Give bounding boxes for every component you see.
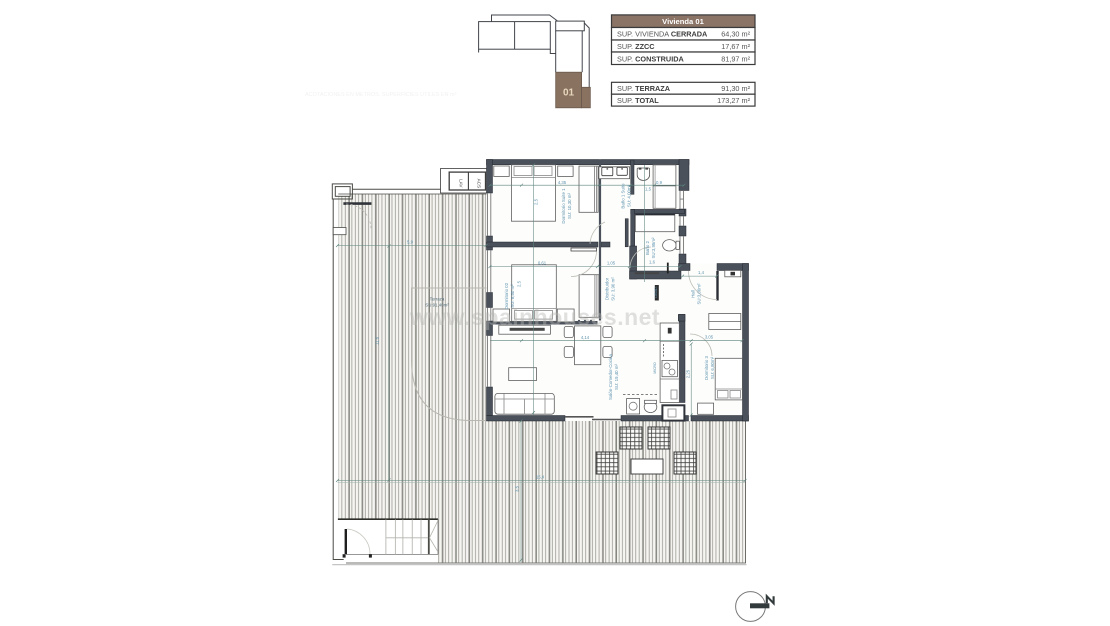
svg-text:91,30 m²: 91,30 m² [721, 84, 750, 93]
svg-text:SU:3,00m²: SU:3,00m² [697, 283, 702, 305]
svg-text:Distribuidor: Distribuidor [605, 277, 610, 300]
svg-text:Baño 1 Suite: Baño 1 Suite [621, 183, 626, 209]
svg-text:1,5: 1,5 [645, 187, 652, 192]
svg-text:64,30 m²: 64,30 m² [721, 30, 750, 39]
svg-text:01: 01 [563, 88, 575, 99]
svg-text:SUP. TOTAL: SUP. TOTAL [617, 96, 659, 105]
svg-text:81,97 m²: 81,97 m² [721, 54, 750, 63]
svg-text:SUP. VIVIENDA CERRADA: SUP. VIVIENDA CERRADA [617, 30, 708, 39]
svg-text:1,6: 1,6 [649, 260, 656, 265]
svg-text:Baño 2: Baño 2 [645, 240, 650, 254]
svg-text:3,05: 3,05 [705, 335, 714, 340]
svg-text:15,4: 15,4 [536, 475, 545, 480]
svg-text:Dormitorio Suite 1: Dormitorio Suite 1 [561, 188, 566, 224]
svg-text:11,6: 11,6 [375, 336, 380, 345]
svg-text:4,14: 4,14 [581, 335, 590, 340]
svg-text:www.spainhouses.net: www.spainhouses.net [409, 304, 660, 330]
svg-text:173,27 m²: 173,27 m² [717, 96, 750, 105]
svg-text:SUP. TERRAZA: SUP. TERRAZA [617, 84, 671, 93]
svg-text:2,5: 2,5 [534, 198, 539, 205]
svg-text:Terraza: Terraza [430, 297, 445, 302]
svg-text:SUP. ZZCC: SUP. ZZCC [617, 42, 655, 51]
svg-text:SU: 19,40 m²: SU: 19,40 m² [614, 364, 619, 390]
svg-text:LAV: LAV [459, 179, 464, 188]
svg-text:SU: 3,90 m²: SU: 3,90 m² [611, 277, 616, 301]
svg-text:SU: 10,30 m²: SU: 10,30 m² [567, 193, 572, 219]
svg-text:LAVAD.: LAVAD. [654, 286, 658, 298]
svg-text:0,61: 0,61 [538, 261, 547, 266]
svg-text:17,67 m²: 17,67 m² [721, 42, 750, 51]
svg-text:5,9: 5,9 [407, 240, 414, 245]
svg-text:1,4: 1,4 [698, 270, 705, 275]
svg-text:3,5: 3,5 [515, 485, 520, 492]
svg-text:1,05: 1,05 [607, 261, 616, 266]
svg-text:4,35: 4,35 [558, 180, 567, 185]
svg-text:2,5: 2,5 [516, 280, 521, 287]
svg-text:SU: 4,00m²: SU: 4,00m² [627, 184, 632, 207]
svg-text:0,9: 0,9 [656, 180, 663, 185]
svg-text:Salón-Comedor-Cocina: Salón-Comedor-Cocina [608, 354, 613, 400]
svg-text:2,25: 2,25 [686, 369, 691, 378]
svg-text:Dormitorio 3: Dormitorio 3 [704, 355, 709, 379]
svg-text:Hall: Hall [691, 290, 696, 298]
svg-text:SUP. CONSTRUIDA: SUP. CONSTRUIDA [617, 54, 685, 63]
svg-text:SU: 6,80m²: SU: 6,80m² [710, 356, 715, 379]
svg-text:Vivienda 01: Vivienda 01 [662, 17, 704, 26]
svg-text:MICRO: MICRO [653, 362, 657, 374]
svg-text:ACS: ACS [477, 179, 482, 188]
svg-text:SU:3,95m²: SU:3,95m² [651, 237, 656, 259]
svg-text:ACOTACIONES EN METROS. SUPERFI: ACOTACIONES EN METROS. SUPERFICIES UTILE… [305, 92, 457, 98]
